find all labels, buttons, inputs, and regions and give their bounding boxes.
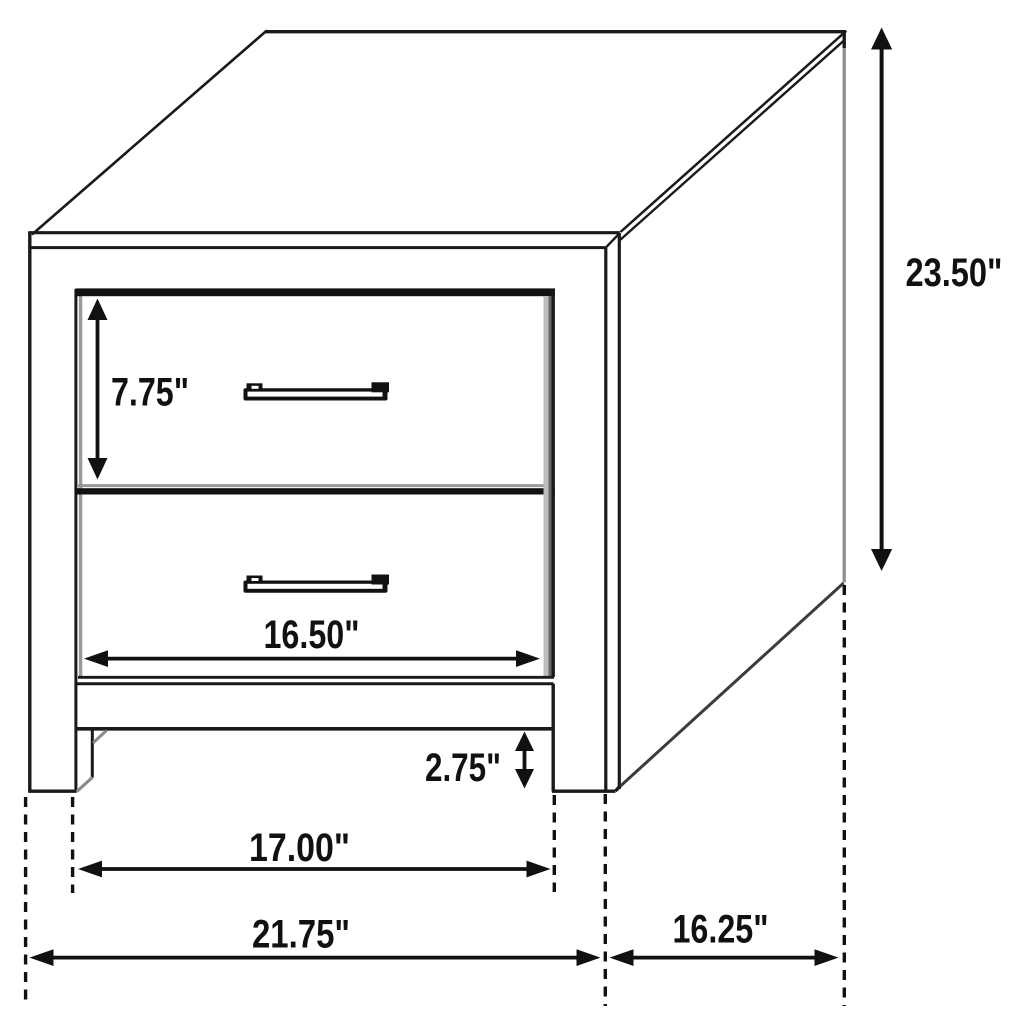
svg-text:7.75": 7.75" (111, 371, 189, 415)
svg-text:21.75": 21.75" (252, 913, 350, 957)
svg-text:17.00": 17.00" (249, 826, 350, 870)
svg-text:2.75": 2.75" (425, 746, 501, 790)
svg-text:16.25": 16.25" (673, 908, 769, 952)
svg-text:23.50": 23.50" (906, 251, 1003, 295)
svg-text:16.50": 16.50" (264, 613, 360, 657)
